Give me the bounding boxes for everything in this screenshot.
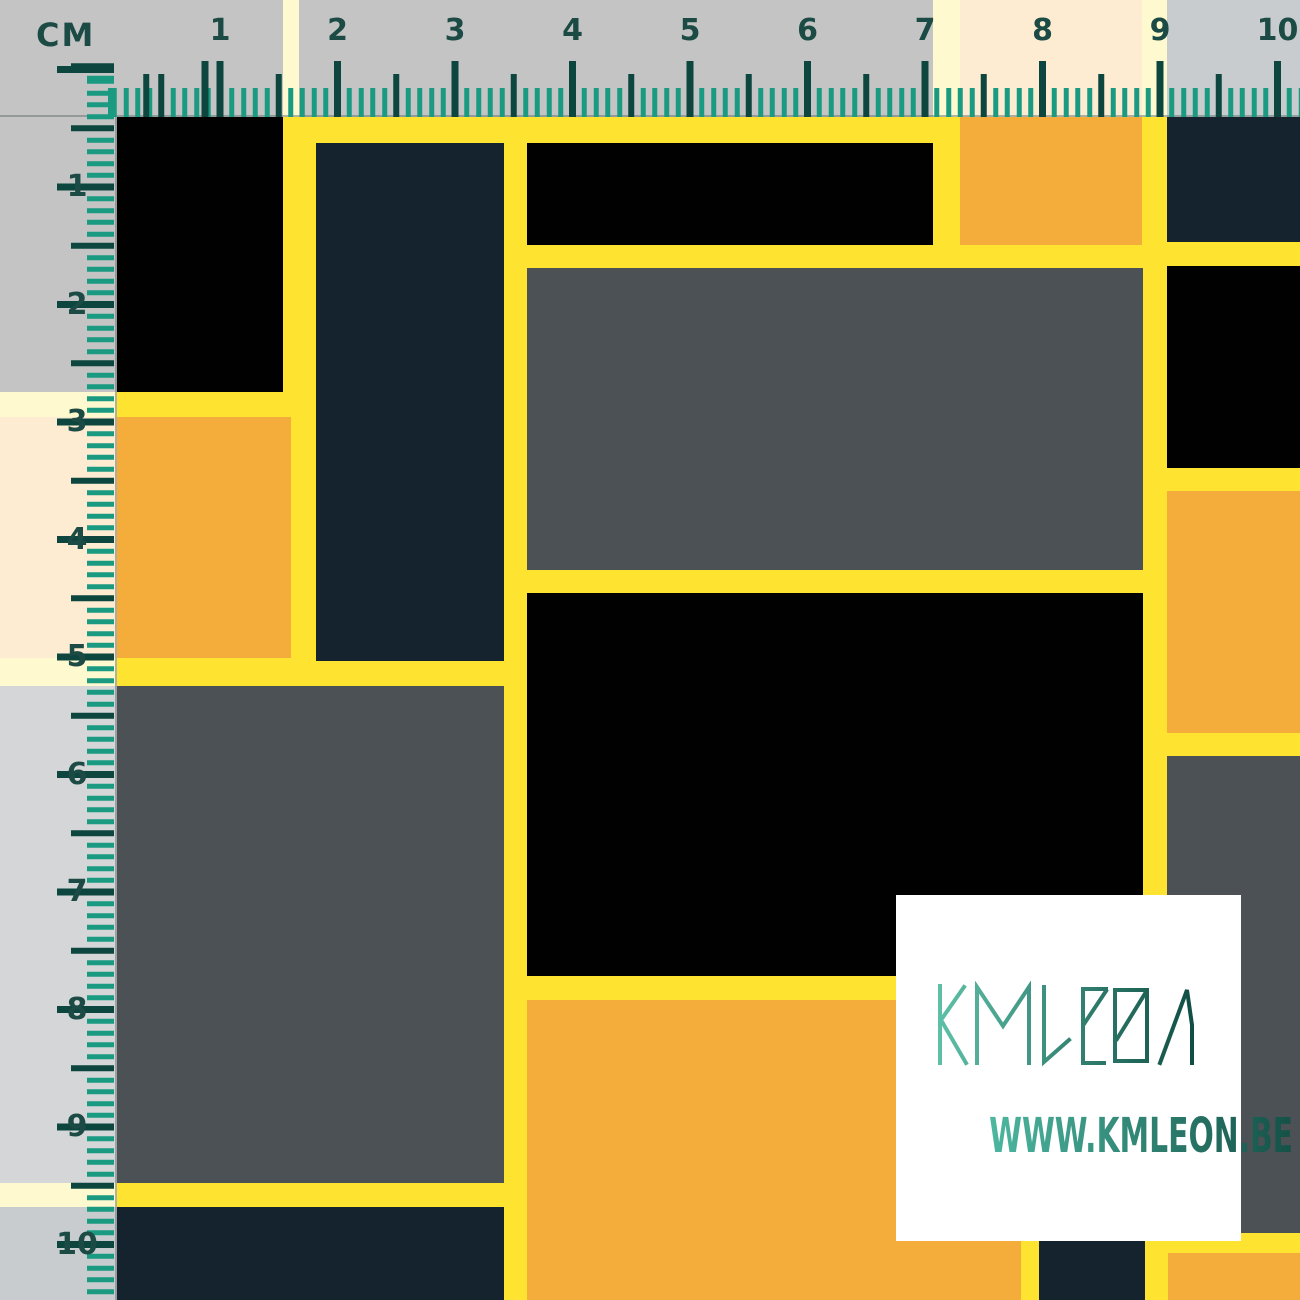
ruler-top-number: 6 (778, 10, 838, 52)
pattern-rect-navy (316, 143, 504, 661)
pattern-rect-orange (1167, 491, 1300, 733)
ruler-top-number: 2 (308, 10, 368, 52)
ruler-left-number: 9 (47, 1106, 107, 1148)
ruler-left-edge (115, 117, 117, 1300)
ruler-top-number: 8 (1013, 10, 1073, 52)
ruler-top-number: 3 (425, 10, 485, 52)
ruler-unit-label: CM (36, 16, 95, 54)
ruler-top-number: 1 (190, 10, 250, 52)
ruler-top-number: 9 (1130, 10, 1190, 52)
pattern-rect-gray (527, 268, 1143, 570)
fabric-pattern-preview: CM 12345678910 12345678910 KMLEON (0, 0, 1300, 1300)
brand-text: KMLEON (896, 895, 897, 896)
pattern-rect-black (1167, 266, 1300, 468)
ruler-left-number: 2 (47, 284, 107, 326)
ruler-left-number: 5 (47, 636, 107, 678)
ruler-left-number: 8 (47, 989, 107, 1031)
pattern-rect-orange (1168, 1253, 1300, 1300)
ruler-left-number: 1 (47, 166, 107, 208)
pattern-rect-black (527, 143, 933, 245)
ruler-left-number: 3 (47, 401, 107, 443)
brand-card: KMLEON (896, 895, 1241, 1241)
kmleon-logo (933, 981, 1203, 1073)
ruler-top-number: 5 (660, 10, 720, 52)
ruler-top-number: 10 (1248, 10, 1300, 52)
ruler-left-number: 4 (47, 519, 107, 561)
website-url: WWW.KMLEON.BE (896, 1112, 1241, 1160)
ruler-top-number: 7 (895, 10, 955, 52)
ruler-left-number: 10 (47, 1224, 107, 1266)
ruler-left-number: 7 (47, 871, 107, 913)
ruler-top-cm-ticks (110, 61, 1300, 117)
ruler-left-number: 6 (47, 754, 107, 796)
ruler-top-number: 4 (543, 10, 603, 52)
